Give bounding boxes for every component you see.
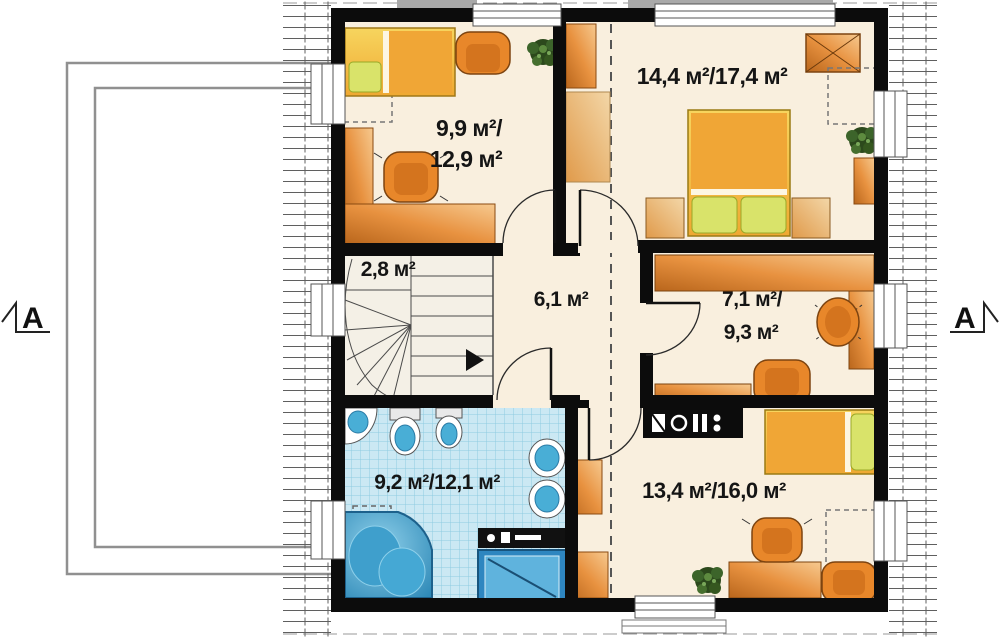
wall-interior <box>345 243 503 256</box>
section-letter-right: A <box>954 302 976 335</box>
closet-icon <box>566 92 610 182</box>
window-icon <box>655 4 835 26</box>
nightstand-icon <box>646 198 684 238</box>
area-label-stair-landing: 2,8 м² <box>361 258 416 281</box>
window-icon <box>311 501 345 559</box>
cabinet-icon <box>854 158 875 204</box>
floor-plan-page: A A 9,9 м²/ 12,9 м² 14,4 м²/17,4 м² 2,8 … <box>0 0 1000 637</box>
wall-interior <box>638 240 874 253</box>
area-label-study-line1: 7,1 м²/ <box>722 288 783 311</box>
bed-icon <box>345 28 455 96</box>
wall-interior <box>640 253 653 303</box>
window-icon <box>874 501 907 561</box>
desk-icon <box>729 562 821 598</box>
dresser-icon <box>806 34 860 72</box>
corner-bathtub-icon <box>345 512 432 598</box>
wall-interior <box>565 400 589 408</box>
shower-icon <box>478 550 566 606</box>
area-label-bedroom-top-left-line1: 9,9 м²/ <box>436 115 503 141</box>
window-icon <box>311 284 345 336</box>
area-label-bedroom-top-left-line2: 12,9 м² <box>430 146 503 172</box>
wall-interior <box>553 243 580 256</box>
wall-exterior-bottom <box>331 598 888 612</box>
wall-interior <box>643 395 874 408</box>
window-icon <box>874 91 907 157</box>
area-label-study-line2: 9,3 м² <box>724 321 779 344</box>
nightstand-icon <box>792 198 830 238</box>
area-label-hallway: 6,1 м² <box>534 288 589 311</box>
double-bed-icon <box>688 110 790 236</box>
section-marker-right: A <box>950 302 998 335</box>
area-label-bathroom: 9,2 м²/12,1 м² <box>374 471 500 494</box>
area-label-bedroom-top-right: 14,4 м²/17,4 м² <box>637 63 788 89</box>
washbasin-icon <box>529 480 565 518</box>
wall-interior <box>565 408 578 598</box>
desk-icon <box>655 255 874 291</box>
armchair-icon <box>822 562 876 602</box>
wardrobe-icon <box>566 24 596 88</box>
washer-counter-icon <box>478 528 566 548</box>
window-icon <box>874 284 907 348</box>
window-icon <box>311 64 345 124</box>
section-letter-left: A <box>22 302 44 335</box>
window-icon <box>473 4 561 26</box>
window-icon <box>622 596 726 633</box>
wall-interior <box>345 395 493 408</box>
area-label-bedroom-bottom-right: 13,4 м²/16,0 м² <box>642 478 786 503</box>
armchair-icon <box>456 32 510 74</box>
desk-icon <box>345 204 495 244</box>
wardrobe-rail-icon <box>643 408 743 438</box>
dormer-box <box>397 0 477 8</box>
bidet-icon <box>436 408 462 448</box>
section-marker-left: A <box>2 302 50 335</box>
washbasin-icon <box>529 439 565 477</box>
toilet-icon <box>390 408 420 455</box>
floor-plan-svg: A A 9,9 м²/ 12,9 м² 14,4 м²/17,4 м² 2,8 … <box>0 0 1000 637</box>
single-bed-icon <box>765 410 877 474</box>
